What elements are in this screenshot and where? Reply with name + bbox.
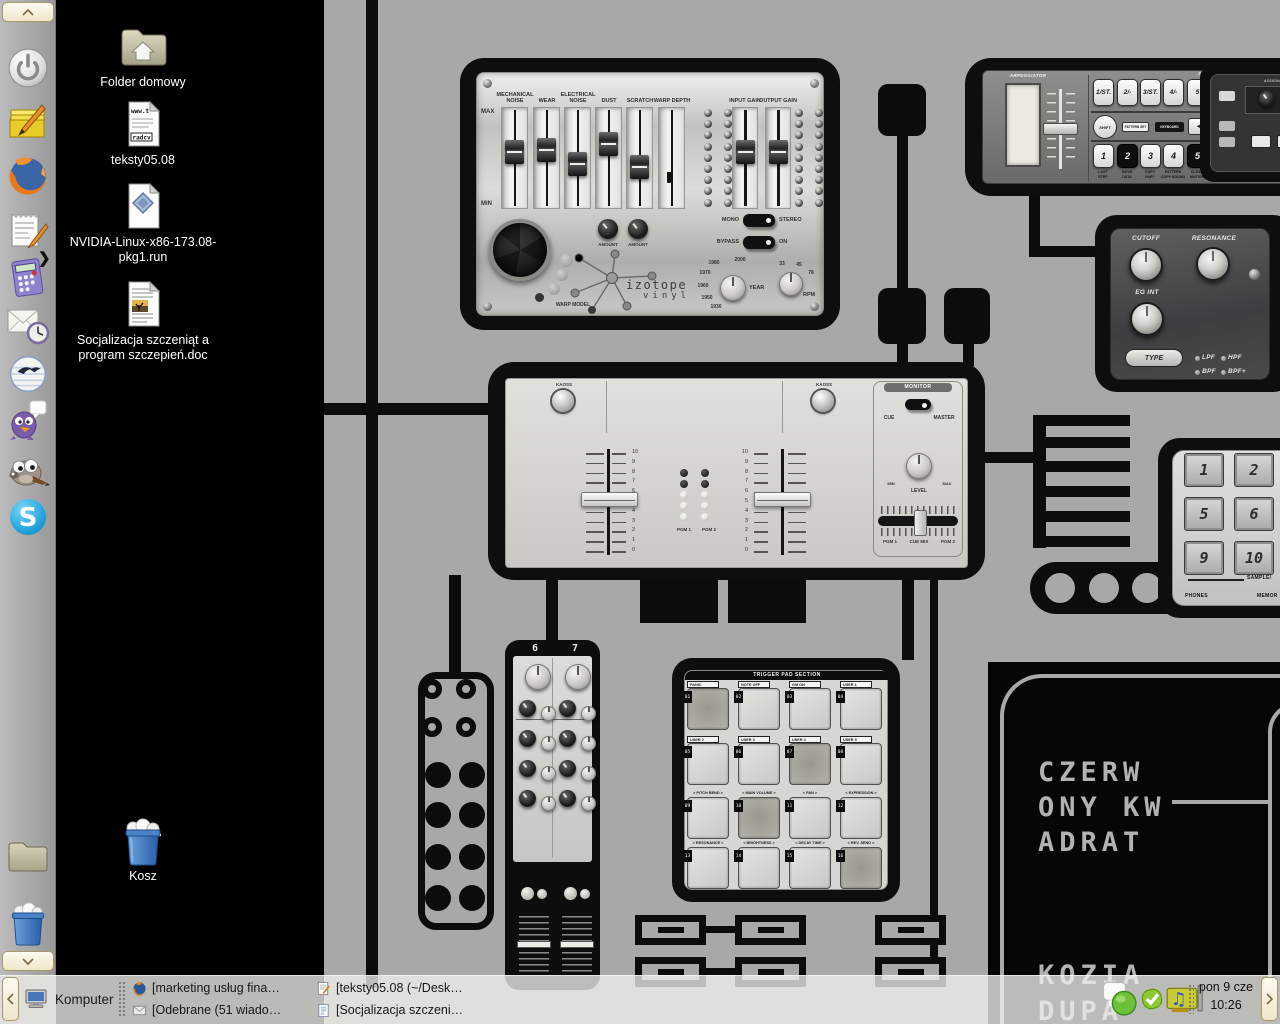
resonance-label: RESONANCE: [1187, 235, 1241, 242]
strip-eq-knob[interactable]: [519, 730, 536, 747]
taskbar-task[interactable]: [Socjalizacja szczeni…: [316, 1000, 496, 1020]
fader-scale-number: 4: [736, 508, 748, 514]
fader-scale-number: 3: [632, 518, 648, 524]
assignable-control-label: ASSIGNABLE CONTROL: [1249, 79, 1280, 83]
strip-eq-knob[interactable]: [519, 760, 536, 777]
pad-label: < MAIN VOLUME >: [734, 791, 784, 795]
desktop-icon-1[interactable]: Folder domowy: [58, 20, 228, 90]
desktop-icon-label: Folder domowy: [64, 75, 222, 90]
cable: [546, 575, 558, 642]
kmenu-button[interactable]: Komputer: [24, 983, 114, 1015]
xfade-cuemix-label: CUE MIX: [902, 539, 936, 544]
strip-eq-knob[interactable]: [559, 700, 576, 717]
strip-aux-knob[interactable]: [581, 736, 596, 751]
slider-handle[interactable]: [537, 138, 556, 162]
text-file-icon: www.tradcv: [58, 100, 228, 150]
led-indicator: [724, 120, 732, 128]
poster-panel: CZERW ONY KW ADRAT KOZIA DUPA: [988, 662, 1280, 1024]
launcher-organizer[interactable]: [5, 301, 51, 347]
fader-scale-number: 2: [736, 527, 748, 533]
pgm-led: [680, 480, 688, 488]
arp-step-button[interactable]: 3/ST.: [1140, 79, 1161, 106]
kaoss-button[interactable]: [552, 390, 574, 412]
panel-collapse-top-button[interactable]: [2, 2, 54, 22]
amount-label: AMOUNT: [624, 242, 652, 247]
pad-label: < RESONANCE >: [683, 841, 733, 845]
vinyl-slider: SCRATCH: [626, 81, 653, 209]
trigger-pad-12[interactable]: 12: [840, 797, 882, 839]
launcher-pidgin[interactable]: [5, 397, 51, 443]
pad-label: PANIC: [687, 681, 719, 688]
ladder-rung: [1046, 437, 1130, 448]
sampler-key-10[interactable]: 10: [1234, 541, 1274, 575]
fader-scale-number: 10: [736, 449, 748, 455]
taskbar: Komputer [marketing usług fina…[teksty05…: [0, 975, 1280, 1024]
pgm-led: [701, 491, 709, 499]
year-tick: 1930: [707, 304, 725, 310]
cable-connector: [944, 288, 990, 344]
strip-button[interactable]: [564, 887, 577, 900]
cable: [930, 578, 938, 918]
vinyl-plugin-face: MECHANICAL NOISEWEARELECTRICAL NOISEDUST…: [476, 72, 824, 316]
led-indicator: [795, 154, 803, 162]
wallpaper: CZERW ONY KW ADRAT KOZIA DUPA MECHANICAL…: [324, 0, 1280, 1024]
cable: [706, 926, 735, 933]
trigger-pad-14[interactable]: 14: [738, 847, 780, 889]
memory-label: MEMOR: [1257, 593, 1278, 599]
patch-jack[interactable]: [425, 885, 451, 911]
trigger-pad-06[interactable]: 06: [738, 743, 780, 785]
eg-int-label: EG INT: [1127, 289, 1167, 296]
led-indicator: [704, 154, 712, 162]
svg-text:www.t: www.t: [131, 108, 149, 115]
pad-number: 04: [836, 691, 845, 703]
ladder-rung: [1046, 415, 1130, 426]
folder-icon: [5, 836, 51, 876]
connector-box: [875, 915, 946, 945]
fader-scale-number: 7: [736, 478, 748, 484]
gain-slider: INPUT GAIN: [732, 81, 758, 209]
gain-slider: OUTPUT GAIN: [765, 81, 791, 209]
assignable-control-face: ASSIGNABLE CONTROL: [1210, 74, 1280, 172]
slider-mark: [667, 172, 673, 183]
led-indicator: [724, 143, 732, 151]
doc-file-icon: [58, 280, 228, 330]
type-button[interactable]: TYPE: [1125, 349, 1183, 367]
skype-status-icon[interactable]: [1139, 986, 1165, 1012]
arpeggiator-label: ARPEGGIATOR: [993, 73, 1063, 78]
launcher-knotes[interactable]: [5, 98, 51, 144]
cable: [706, 968, 735, 975]
fader-scale-number: 5: [736, 498, 748, 504]
trigger-pad-02[interactable]: 02: [738, 688, 780, 730]
ladder-rail: [1033, 415, 1046, 548]
trigger-pad-11[interactable]: 11: [789, 797, 831, 839]
strip-aux-knob[interactable]: [581, 706, 596, 721]
clock[interactable]: pon 9 cze 10:26: [1194, 978, 1258, 1014]
phones-label: PHONES: [1185, 593, 1208, 599]
assignable-knob[interactable]: [1259, 91, 1275, 107]
patch-jack[interactable]: [422, 679, 442, 699]
fader-scale-number: 8: [632, 469, 648, 475]
installer-file-icon: [58, 182, 228, 232]
strip-selector-knob[interactable]: [525, 664, 551, 690]
computer-icon: [24, 988, 48, 1010]
led-indicator: [815, 154, 823, 162]
trigger-pad-09[interactable]: 09: [687, 797, 729, 839]
led-indicator: [724, 199, 732, 207]
notepad-icon: [6, 208, 50, 252]
fader-scale-number: 6: [736, 488, 748, 494]
cue-master-switch[interactable]: [905, 399, 931, 410]
device-button[interactable]: [1219, 91, 1235, 101]
vinyl-slider: WARP DEPTH: [658, 81, 685, 209]
clock-date: pon 9 cze: [1194, 978, 1258, 996]
launcher-folder[interactable]: [5, 833, 51, 879]
sampler-key-1[interactable]: 1: [1184, 453, 1224, 487]
rpm-knob[interactable]: [779, 272, 803, 296]
channel-strip-face: [513, 656, 592, 862]
strip-button[interactable]: [537, 889, 547, 899]
cable: [1029, 246, 1100, 257]
slider-handle[interactable]: [568, 152, 587, 176]
year-tick: 1960: [694, 283, 712, 289]
slider-track: [658, 107, 685, 209]
document-icon: [316, 1003, 331, 1018]
desktop-icon-2[interactable]: www.tradcvteksty05.08: [58, 100, 228, 168]
pad-number: 12: [836, 800, 845, 812]
strip-aux-knob[interactable]: [541, 736, 556, 751]
slider-handle[interactable]: [505, 140, 524, 164]
desktop-icon-label: teksty05.08: [64, 153, 222, 168]
taskbar-handle[interactable]: [118, 981, 127, 1017]
task-label: [marketing usług fina…: [152, 981, 280, 995]
led-indicator: [724, 109, 732, 117]
max-label: MAX: [481, 109, 494, 115]
fader-scale-number: 4: [632, 508, 648, 514]
led-indicator: [815, 176, 823, 184]
panel-hide-left-button[interactable]: [2, 977, 19, 1021]
led-indicator: [815, 109, 823, 117]
device-key[interactable]: [1251, 135, 1271, 148]
sampler-key-2[interactable]: 2: [1234, 453, 1274, 487]
svg-text:♫: ♫: [1171, 989, 1187, 1010]
patch-jack[interactable]: [425, 802, 451, 828]
arp-number-button[interactable]: 3: [1140, 144, 1161, 168]
patch-jack[interactable]: [459, 844, 485, 870]
task-label: [Odebrane (51 wiado…: [152, 1003, 281, 1017]
pad-number: 09: [683, 800, 692, 812]
desktop-icon-label: Kosz: [64, 869, 222, 884]
trigger-pad-01[interactable]: 01: [687, 688, 729, 730]
fader-scale-number: 8: [736, 469, 748, 475]
led-indicator: [724, 187, 732, 195]
sampler-key-6[interactable]: 6: [1234, 497, 1274, 531]
year-label: YEAR: [749, 285, 773, 291]
pad-number: 05: [683, 746, 692, 758]
pgm-led: [680, 502, 688, 510]
patch-jack[interactable]: [422, 717, 442, 737]
pad-label: NOTE OFF: [738, 681, 770, 688]
arp-number-button[interactable]: 2: [1117, 144, 1138, 168]
fader-scale-number: 3: [736, 518, 748, 524]
rpm-tick: 78: [805, 270, 817, 276]
vinyl-logo-text: vinyl: [643, 291, 690, 301]
cable: [897, 136, 908, 290]
taskbar-task[interactable]: [teksty05.08 (~/Desk…: [316, 978, 496, 998]
arp-step-button[interactable]: 4/-: [1163, 79, 1184, 106]
arp-step-button[interactable]: 2/-: [1117, 79, 1138, 106]
pgm-led: [701, 480, 709, 488]
strip-aux-knob[interactable]: [541, 766, 556, 781]
led-indicator: [724, 154, 732, 162]
strip-fader[interactable]: [519, 916, 549, 972]
slider-handle[interactable]: [599, 132, 618, 156]
trigger-pad-03[interactable]: 03: [789, 688, 831, 730]
amount-knob[interactable]: [598, 219, 618, 239]
bpf-plus-label: BPF+: [1228, 368, 1246, 375]
strip-eq-knob[interactable]: [519, 700, 536, 717]
trigger-pad-07[interactable]: 07: [789, 743, 831, 785]
kaoss-label: KAOSS: [802, 382, 846, 387]
trigger-pad-10[interactable]: 10: [738, 797, 780, 839]
panel-extension-arrow-icon[interactable]: ❯: [38, 249, 51, 267]
slider-label: OUTPUT GAIN: [758, 81, 798, 105]
sampler-face: 1256910 SAMPLE/ PHONES MEMOR: [1172, 450, 1280, 606]
strip-aux-knob[interactable]: [541, 706, 556, 721]
trigger-pad-04[interactable]: 04: [840, 688, 882, 730]
cable-connector: [878, 288, 926, 344]
phones-jack: [1045, 573, 1075, 603]
phones-jack: [1089, 573, 1119, 603]
strip-fader[interactable]: [562, 916, 592, 972]
ladder-rung: [1046, 461, 1130, 472]
master-label: MASTER: [927, 415, 961, 421]
ladder-rung: [1046, 536, 1130, 547]
launcher-openoffice[interactable]: [5, 351, 51, 397]
kaoss-button[interactable]: [812, 390, 834, 412]
resonance-knob[interactable]: [1196, 247, 1230, 281]
trigger-pad-13[interactable]: 13: [687, 847, 729, 889]
bpf-label: BPF: [1202, 368, 1218, 375]
led-indicator: [815, 131, 823, 139]
mail-clock-icon: [5, 302, 51, 346]
patch-jack[interactable]: [425, 844, 451, 870]
launcher-logout[interactable]: [5, 45, 51, 91]
pattern-set-button[interactable]: PATTERN SET: [1122, 122, 1149, 132]
arp-slider-handle[interactable]: [1043, 123, 1078, 135]
side-panel: S ❯: [0, 0, 56, 975]
desktop-root: CZERW ONY KW ADRAT KOZIA DUPA MECHANICAL…: [0, 0, 1280, 1024]
strip-aux-knob[interactable]: [541, 796, 556, 811]
slider-track: [765, 107, 791, 209]
arp-number-button[interactable]: 1: [1093, 144, 1114, 168]
trigger-pad-16[interactable]: 16: [840, 847, 882, 889]
launcher-editor[interactable]: [5, 207, 51, 253]
fader-scale-number: 10: [632, 449, 648, 455]
desktop-icon-4[interactable]: Socjalizacja szczeniąt a program szczepi…: [58, 280, 228, 363]
sampler-key-9[interactable]: 9: [1184, 541, 1224, 575]
pgm-led: [680, 513, 688, 521]
strip-aux-knob[interactable]: [581, 796, 596, 811]
eg-int-knob[interactable]: [1130, 302, 1164, 336]
strip-eq-knob[interactable]: [559, 790, 576, 807]
slider-handle[interactable]: [736, 140, 755, 164]
led-indicator: [704, 109, 712, 117]
year-knob[interactable]: [720, 275, 746, 301]
year-tick: 1950: [698, 295, 716, 301]
taskbar-task[interactable]: [Odebrane (51 wiado…: [132, 1000, 312, 1020]
pgm2-label: PGM 2: [694, 527, 724, 532]
cable-connector: [878, 84, 926, 136]
vinyl-slider: MECHANICAL NOISE: [501, 81, 528, 209]
amount-knob[interactable]: [628, 219, 648, 239]
level-label: LEVEL: [905, 488, 933, 494]
slider-track: [501, 107, 528, 209]
fader-scale-number: 0: [632, 547, 648, 553]
desktop-icon-label: Socjalizacja szczeniąt a program szczepi…: [64, 333, 222, 363]
led-indicator: [795, 165, 803, 173]
desktop-icon-5[interactable]: Kosz: [58, 818, 228, 884]
rpm-label: RPM: [803, 292, 825, 298]
patch-jack[interactable]: [425, 762, 451, 788]
launcher-firefox[interactable]: [5, 152, 51, 198]
patch-jack[interactable]: [459, 762, 485, 788]
launcher-gimp[interactable]: [5, 447, 51, 493]
sampler-key-5[interactable]: 5: [1184, 497, 1224, 531]
channel-number: 6: [523, 643, 547, 654]
led-indicator: [795, 131, 803, 139]
pad-label: USER 1: [840, 681, 872, 688]
led-indicator: [815, 187, 823, 195]
strip-eq-knob[interactable]: [559, 730, 576, 747]
pad-number: 16: [836, 850, 845, 862]
mixer-leg: [728, 578, 806, 623]
panel-collapse-bottom-button[interactable]: [2, 951, 54, 971]
pidgin-icon: [6, 398, 50, 442]
device-button[interactable]: [1219, 137, 1235, 147]
panel-hide-right-button[interactable]: [1261, 977, 1278, 1021]
poster-text: ONY KW: [1038, 792, 1166, 823]
trigger-pad-face: TRIGGER PAD SECTION PANIC01NOTE OFF02GM …: [684, 670, 888, 890]
shift-button[interactable]: SHIFT: [1093, 115, 1117, 139]
desktop-icon-label: NVIDIA-Linux-x86-173.08-pkg1.run: [64, 235, 222, 265]
bypass-label: BYPASS: [699, 239, 739, 245]
izotope-logo-text: izotope: [626, 278, 687, 292]
fader-scale-number: 9: [632, 459, 648, 465]
max-label: MAX: [939, 481, 955, 486]
taskbar-task[interactable]: [marketing usług fina…: [132, 978, 312, 998]
led-indicator: [704, 120, 712, 128]
hpf-label: HPF: [1228, 354, 1244, 361]
led-indicator: [795, 120, 803, 128]
bypass-switch[interactable]: [743, 236, 775, 249]
slider-track: [564, 107, 591, 209]
strip-button[interactable]: [580, 889, 590, 899]
keyboard-button[interactable]: KEYBOARD: [1155, 122, 1184, 132]
ladder-rung: [1046, 486, 1130, 497]
cutoff-label: CUTOFF: [1123, 235, 1169, 242]
fader-scale-number: 9: [736, 459, 748, 465]
pad-label: < PITCH BEND >: [683, 791, 733, 795]
cable: [324, 403, 490, 415]
patch-jack[interactable]: [456, 717, 476, 737]
device-button[interactable]: [1219, 121, 1235, 131]
slider-handle[interactable]: [630, 155, 649, 179]
arp-number-button[interactable]: 4: [1163, 144, 1184, 168]
pgm-led: [680, 469, 688, 477]
patch-jack[interactable]: [459, 802, 485, 828]
folder-home-icon: [58, 20, 228, 72]
messenger-status-icon[interactable]: [1102, 981, 1138, 1017]
slider-track: [595, 107, 622, 209]
slider-handle[interactable]: [769, 140, 788, 164]
monitor-label: MONITOR: [884, 383, 952, 392]
power-icon: [7, 47, 49, 89]
mixer-leg: [640, 578, 718, 623]
editor-icon: [316, 981, 331, 996]
pad-label: < PAN >: [785, 791, 835, 795]
svg-text:radcv: radcv: [133, 135, 151, 142]
launcher-trash[interactable]: [5, 901, 51, 947]
pad-number: 15: [785, 850, 794, 862]
pad-label: USER 3: [738, 736, 770, 743]
led-indicator: [724, 165, 732, 173]
poster-text: CZERW: [1038, 757, 1144, 788]
patch-jack[interactable]: [456, 679, 476, 699]
sample-label: SAMPLE/: [1247, 575, 1271, 581]
pad-number: 14: [734, 850, 743, 862]
trigger-pad-08[interactable]: 08: [840, 743, 882, 785]
strip-eq-knob[interactable]: [519, 790, 536, 807]
pad-number: 11: [785, 800, 794, 812]
channel-fader[interactable]: [754, 492, 811, 507]
year-tick: 2000: [731, 257, 749, 263]
level-knob[interactable]: [906, 453, 932, 479]
slider-track: [533, 107, 560, 209]
patch-jack[interactable]: [459, 885, 485, 911]
kmenu-label: Komputer: [55, 992, 114, 1007]
mail-icon: [132, 1003, 147, 1018]
trigger-pad-05[interactable]: 05: [687, 743, 729, 785]
strip-aux-knob[interactable]: [581, 766, 596, 781]
slider-track: [732, 107, 758, 209]
channel-fader[interactable]: [581, 492, 638, 507]
launcher-skype[interactable]: S: [5, 494, 51, 540]
slider-track: [626, 107, 653, 209]
trigger-pad-title: TRIGGER PAD SECTION: [685, 671, 889, 680]
task-label: [teksty05.08 (~/Desk…: [336, 981, 463, 995]
cutoff-knob[interactable]: [1129, 248, 1163, 282]
desktop-icon-3[interactable]: NVIDIA-Linux-x86-173.08-pkg1.run: [58, 182, 228, 265]
arp-step-button[interactable]: 1/ST.: [1093, 79, 1114, 106]
pad-number: 06: [734, 746, 743, 758]
skype-icon: S: [6, 495, 50, 539]
trigger-pad-15[interactable]: 15: [789, 847, 831, 889]
led-indicator: [815, 120, 823, 128]
strip-selector-knob[interactable]: [565, 664, 591, 690]
fader-scale-number: 0: [736, 547, 748, 553]
strip-eq-knob[interactable]: [559, 760, 576, 777]
strip-button[interactable]: [521, 887, 534, 900]
xfade-pgm1-label: PGM 1: [877, 539, 903, 544]
pad-label: USER 5: [840, 736, 872, 743]
led-indicator: [704, 187, 712, 195]
crossfader[interactable]: [914, 510, 927, 536]
led-indicator: [704, 165, 712, 173]
min-label: MIN: [481, 201, 492, 207]
mono-stereo-switch[interactable]: [743, 214, 775, 227]
